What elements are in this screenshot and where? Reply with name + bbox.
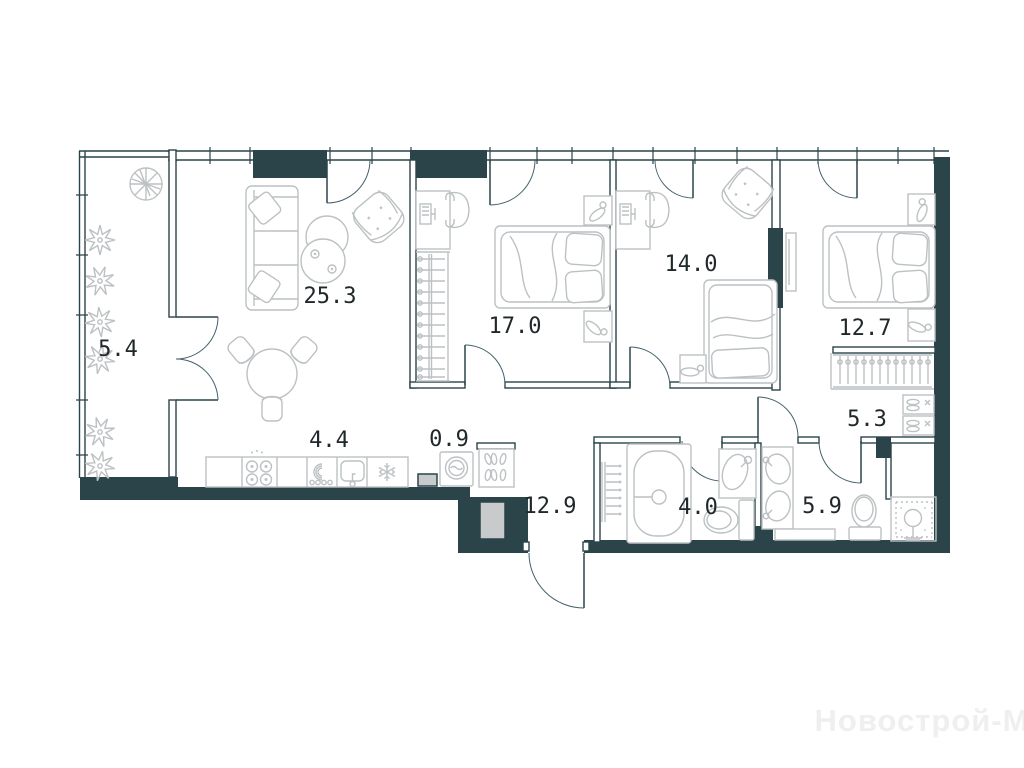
desk-icon: [616, 191, 650, 249]
bathroom2-door: [819, 441, 861, 483]
nightstand-icon: [905, 309, 935, 341]
nightstand-icon: [583, 311, 612, 342]
nightstand-icon: [677, 355, 706, 385]
bathroom1-fixtures: [602, 444, 756, 543]
french-window-bedroom3: [818, 160, 857, 198]
wall-shoe-niche: [477, 443, 515, 449]
balcony-glazing-top: [79, 151, 169, 157]
bed-icon: [823, 226, 935, 308]
wall-living-bedroom1: [410, 160, 416, 388]
balcony-door: [176, 317, 218, 400]
wall-bedroom2-south: [610, 382, 630, 388]
room-label-bathroom-1: 4.0: [678, 495, 718, 520]
nightstand-icon: [584, 196, 612, 225]
bedroom1-furniture: [416, 191, 612, 381]
coffee-table-icon: [301, 216, 348, 283]
wall-pier: [253, 150, 327, 178]
floor-plan-drawing: 5.4 25.3 17.0 14.0 12.7 4.4 0.9 12.9 5.3…: [0, 0, 1024, 768]
room-label-balcony: 5.4: [98, 337, 138, 362]
room-label-kitchen: 4.4: [309, 428, 349, 453]
bedroom1-door: [465, 345, 505, 385]
room-label-utility-niche: 0.9: [429, 427, 469, 452]
dining-table-icon: [226, 334, 320, 421]
clothes-rail-icon: [831, 353, 934, 389]
dining-chair-icon: [262, 397, 282, 422]
wall-bedroom1-south: [505, 382, 616, 388]
windows: [76, 147, 949, 478]
french-window-bedroom1: [490, 160, 535, 205]
wall-balcony-bottom: [80, 477, 178, 500]
plant-icon: [130, 168, 162, 200]
bathroom2-fixtures: [762, 447, 936, 541]
wall-bedroom3-south: [833, 347, 935, 353]
door-jamb: [523, 542, 529, 551]
plant-icon: [81, 262, 119, 300]
balcony-plants: [79, 168, 162, 487]
room-label-bedroom-2: 14.0: [665, 252, 718, 277]
washbasin-icon: [718, 449, 756, 498]
room-label-living-room: 25.3: [304, 284, 357, 309]
wall-bath-top: [861, 437, 935, 443]
towel-rail-icon: [602, 462, 621, 522]
utility-niche: [418, 449, 514, 487]
room-label-bathroom-2: 5.9: [802, 494, 842, 519]
kitchen-counter: [206, 450, 408, 487]
wall-pier: [410, 150, 487, 178]
double-washbasin-icon: [762, 447, 793, 529]
shower-icon: [891, 497, 936, 541]
outer-walls: [80, 150, 950, 553]
wall-bath-top: [722, 437, 758, 443]
single-bed-icon: [704, 280, 777, 383]
room-label-bedroom-3: 12.7: [839, 316, 892, 341]
washing-machine-icon: [440, 452, 473, 486]
toilet-icon: [849, 495, 881, 540]
wall-bath-top: [594, 437, 680, 443]
wall-bedroom1-bedroom2: [610, 160, 616, 388]
wardrobe-icon: [416, 252, 450, 381]
bedroom2-door: [630, 347, 670, 387]
ventilation-shaft: [480, 502, 505, 539]
bath-cabinet: [775, 529, 835, 540]
desk-icon: [416, 191, 450, 249]
wall-bathroom1-west: [594, 443, 600, 542]
watermark: Новострой-М: [815, 703, 1024, 738]
floor-plan: 5.4 25.3 17.0 14.0 12.7 4.4 0.9 12.9 5.3…: [0, 0, 1024, 768]
room-label-hallway: 12.9: [524, 494, 577, 519]
wardrobe-hall-door: [758, 397, 798, 437]
wall-balcony-divider: [169, 150, 176, 317]
armchair-icon: [718, 164, 777, 223]
shoe-shelf-icon: [903, 395, 934, 435]
room-label-bedroom-1: 17.0: [489, 314, 542, 339]
wall-right: [934, 157, 950, 553]
french-window-living: [327, 160, 370, 203]
wall-bath-top: [798, 437, 819, 443]
bathtub-icon: [627, 444, 691, 543]
nightstand-icon: [907, 194, 935, 225]
french-window-bedroom2: [655, 160, 693, 198]
duct-box: [418, 474, 437, 486]
armchair-icon: [349, 188, 408, 247]
room-label-wardrobe-hall: 5.3: [847, 407, 887, 432]
wall-balcony-divider: [169, 400, 176, 477]
tv-icon: [786, 233, 796, 291]
wall-pier: [876, 437, 891, 458]
entry-door: [529, 553, 584, 608]
shoe-cabinet-icon: [479, 449, 514, 487]
bed-icon: [495, 226, 610, 308]
sofa-icon: [246, 186, 298, 310]
door-jamb: [583, 542, 589, 551]
plant-icon: [85, 225, 115, 255]
wall-bedroom1-south: [410, 382, 465, 388]
